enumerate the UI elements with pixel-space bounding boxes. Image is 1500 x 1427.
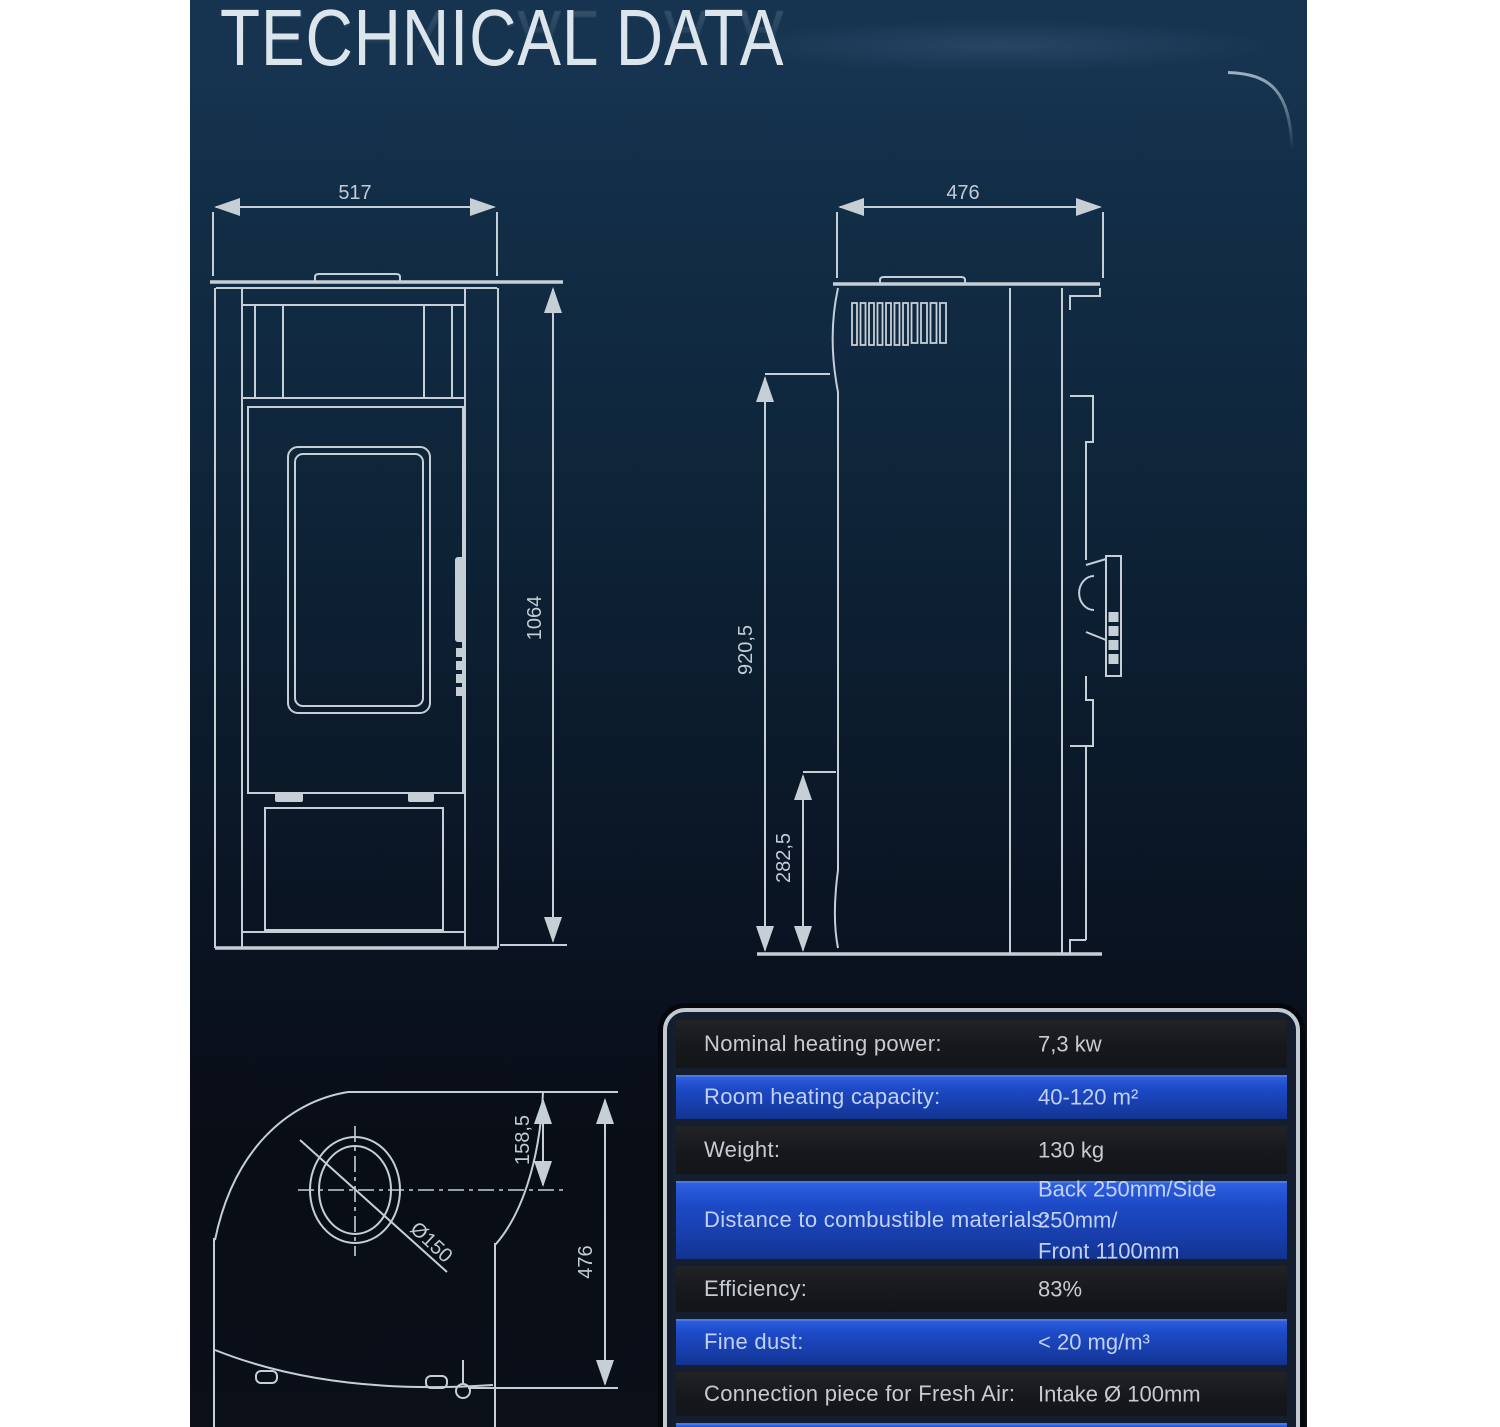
spec-value: 40-120 m² [1038, 1082, 1138, 1113]
spec-row: Connection piece for Fresh Air: Intake Ø… [676, 1372, 1287, 1416]
side-upper-height-dim: 920,5 [735, 625, 757, 675]
spec-row [676, 1423, 1287, 1427]
spec-table-rows: Nominal heating power: 7,3 kw Room heati… [676, 1020, 1287, 1427]
datasheet: TECHNICAL DATA TECHNICAL DATA [190, 0, 1307, 1427]
flue-offset-dim: 158,5 [512, 1115, 534, 1165]
spec-row: Fine dust: < 20 mg/m³ [676, 1319, 1287, 1365]
spec-row: Distance to combustible materials: Back … [676, 1181, 1287, 1259]
spec-label: Room heating capacity: [704, 1084, 941, 1110]
front-height-dim: 1064 [524, 596, 546, 641]
spec-label: Weight: [704, 1137, 780, 1163]
side-depth-dim: 476 [946, 182, 979, 204]
spec-value: 83% [1038, 1274, 1082, 1305]
spec-label: Nominal heating power: [704, 1031, 942, 1057]
side-view: 476 [735, 182, 1121, 954]
spec-row: Room heating capacity: 40-120 m² [676, 1075, 1287, 1119]
spec-value: Back 250mm/Side 250mm/Front 1100mm [1038, 1174, 1287, 1267]
side-lower-height-dim: 282,5 [773, 833, 795, 883]
spec-row: Weight: 130 kg [676, 1126, 1287, 1174]
page: TECHNICAL DATA TECHNICAL DATA [0, 0, 1500, 1427]
spec-row: Nominal heating power: 7,3 kw [676, 1020, 1287, 1068]
spec-row: Efficiency: 83% [676, 1266, 1287, 1312]
spec-label: Efficiency: [704, 1276, 807, 1302]
spec-table: Nominal heating power: 7,3 kw Room heati… [663, 1008, 1300, 1427]
top-depth-dim: 476 [575, 1245, 597, 1278]
spec-label: Connection piece for Fresh Air: [704, 1381, 1015, 1407]
spec-label: Fine dust: [704, 1329, 804, 1355]
top-view: Ø150 158,5 476 [214, 1092, 618, 1427]
spec-label: Distance to combustible materials: [704, 1207, 1049, 1233]
spec-value: 7,3 kw [1038, 1029, 1102, 1060]
front-view: 1064 517 [210, 182, 567, 948]
spec-value: < 20 mg/m³ [1038, 1327, 1150, 1358]
spec-value: 130 kg [1038, 1135, 1104, 1166]
front-width-dim: 517 [338, 182, 371, 204]
spec-value: Intake Ø 100mm [1038, 1379, 1201, 1410]
